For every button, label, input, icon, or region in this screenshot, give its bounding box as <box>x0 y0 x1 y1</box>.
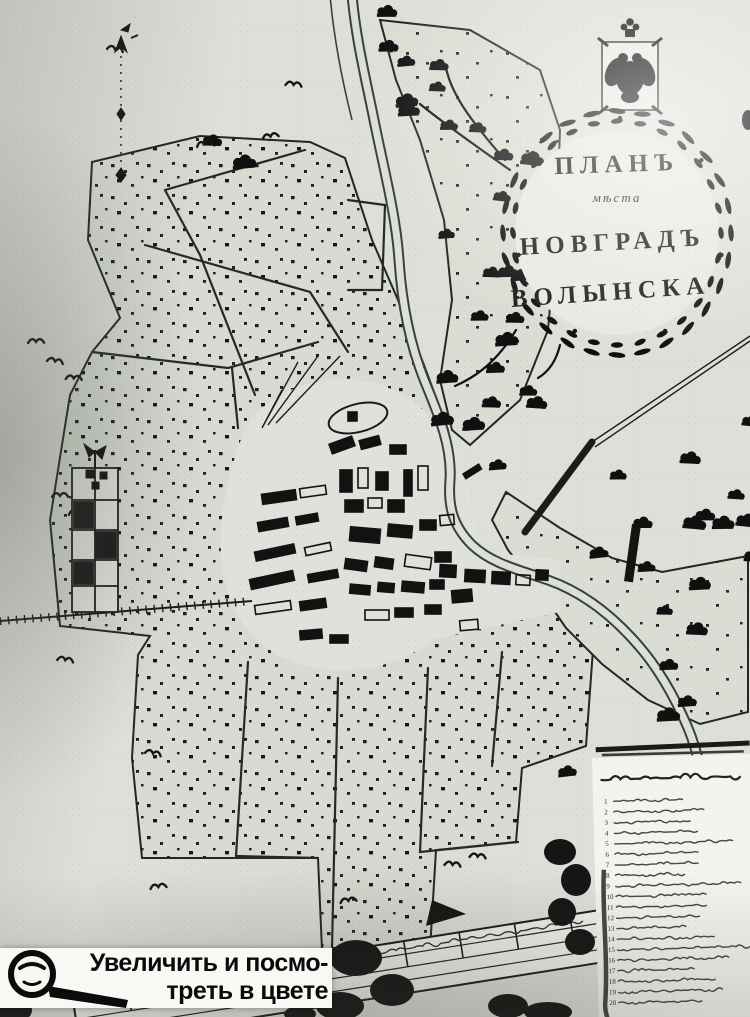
overlay-text-line1: Увеличить и посмо- <box>90 949 328 977</box>
paper-grain <box>0 0 750 1017</box>
historic-town-plan-image: Планъ мѣста Новградъ Волынска 1234567891… <box>0 0 750 1017</box>
enlarge-view-in-color-button[interactable]: Увеличить и посмо- треть в цвете <box>0 948 332 1008</box>
scanned-map-page: Планъ мѣста Новградъ Волынска 1234567891… <box>0 0 750 1017</box>
overlay-text-line2: треть в цвете <box>90 977 328 1005</box>
